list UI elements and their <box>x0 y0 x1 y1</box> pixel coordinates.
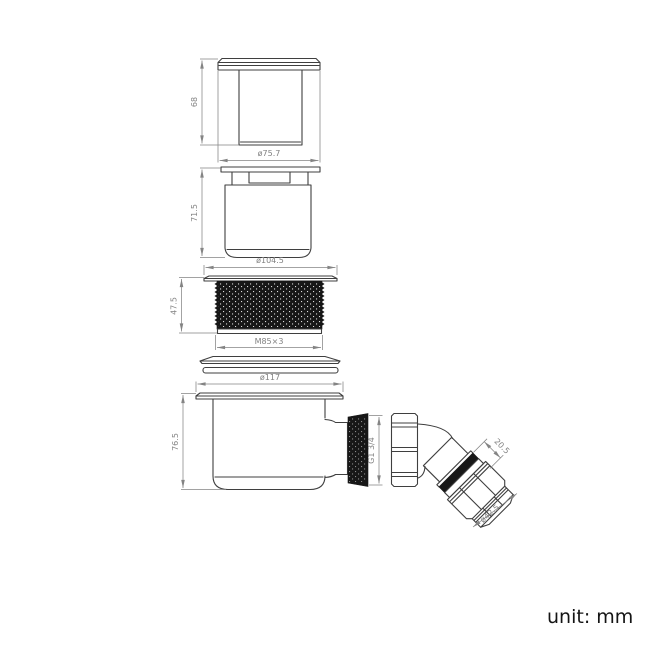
unit-note: unit: mm <box>547 606 633 628</box>
elbow-nut-diameter-label: ø42.5 <box>478 503 501 525</box>
insert-height-label: 71.5 <box>190 204 199 222</box>
part-trap-body <box>196 393 368 490</box>
cap-height-label: 68 <box>190 97 199 107</box>
dim-body-diameter: ø117 <box>196 373 343 392</box>
dim-thread-height: 47.5 <box>170 278 218 334</box>
dim-thread-spec: M85×3 <box>216 335 323 350</box>
thread-height-label: 47.5 <box>170 297 179 315</box>
dim-cap-diameter: ø75.7 <box>218 71 320 163</box>
technical-drawing: 68 ø75.7 71.5 ø104.5 47.5 M85× <box>0 0 650 650</box>
body-diameter-label: ø117 <box>260 373 280 382</box>
insert-diameter-label: ø104.5 <box>256 256 284 265</box>
body-height-label: 76.5 <box>171 433 180 451</box>
dim-elbow-nut-diameter: ø42.5 <box>473 494 517 528</box>
dim-insert-height: 71.5 <box>190 168 225 258</box>
drawing-page: 68 ø75.7 71.5 ø104.5 47.5 M85× <box>0 0 650 650</box>
cap-diameter-label: ø75.7 <box>258 149 281 158</box>
outlet-thread-label: G1 3/4 <box>367 437 376 464</box>
dim-cap-height: 68 <box>190 59 239 145</box>
dim-outlet-thread: G1 3/4 <box>367 416 383 486</box>
thread-speckle-texture <box>218 283 321 327</box>
part-bevel-washer <box>200 357 340 364</box>
part-threaded-collar <box>204 276 337 334</box>
part-coupling-nut <box>392 414 418 487</box>
dim-insert-diameter: ø104.5 <box>204 256 337 275</box>
part-cover-cap <box>218 59 320 146</box>
thread-spec-label: M85×3 <box>255 337 284 346</box>
part-insert-body <box>221 167 320 258</box>
dim-body-height: 76.5 <box>171 394 226 490</box>
part-elbow <box>418 420 531 532</box>
